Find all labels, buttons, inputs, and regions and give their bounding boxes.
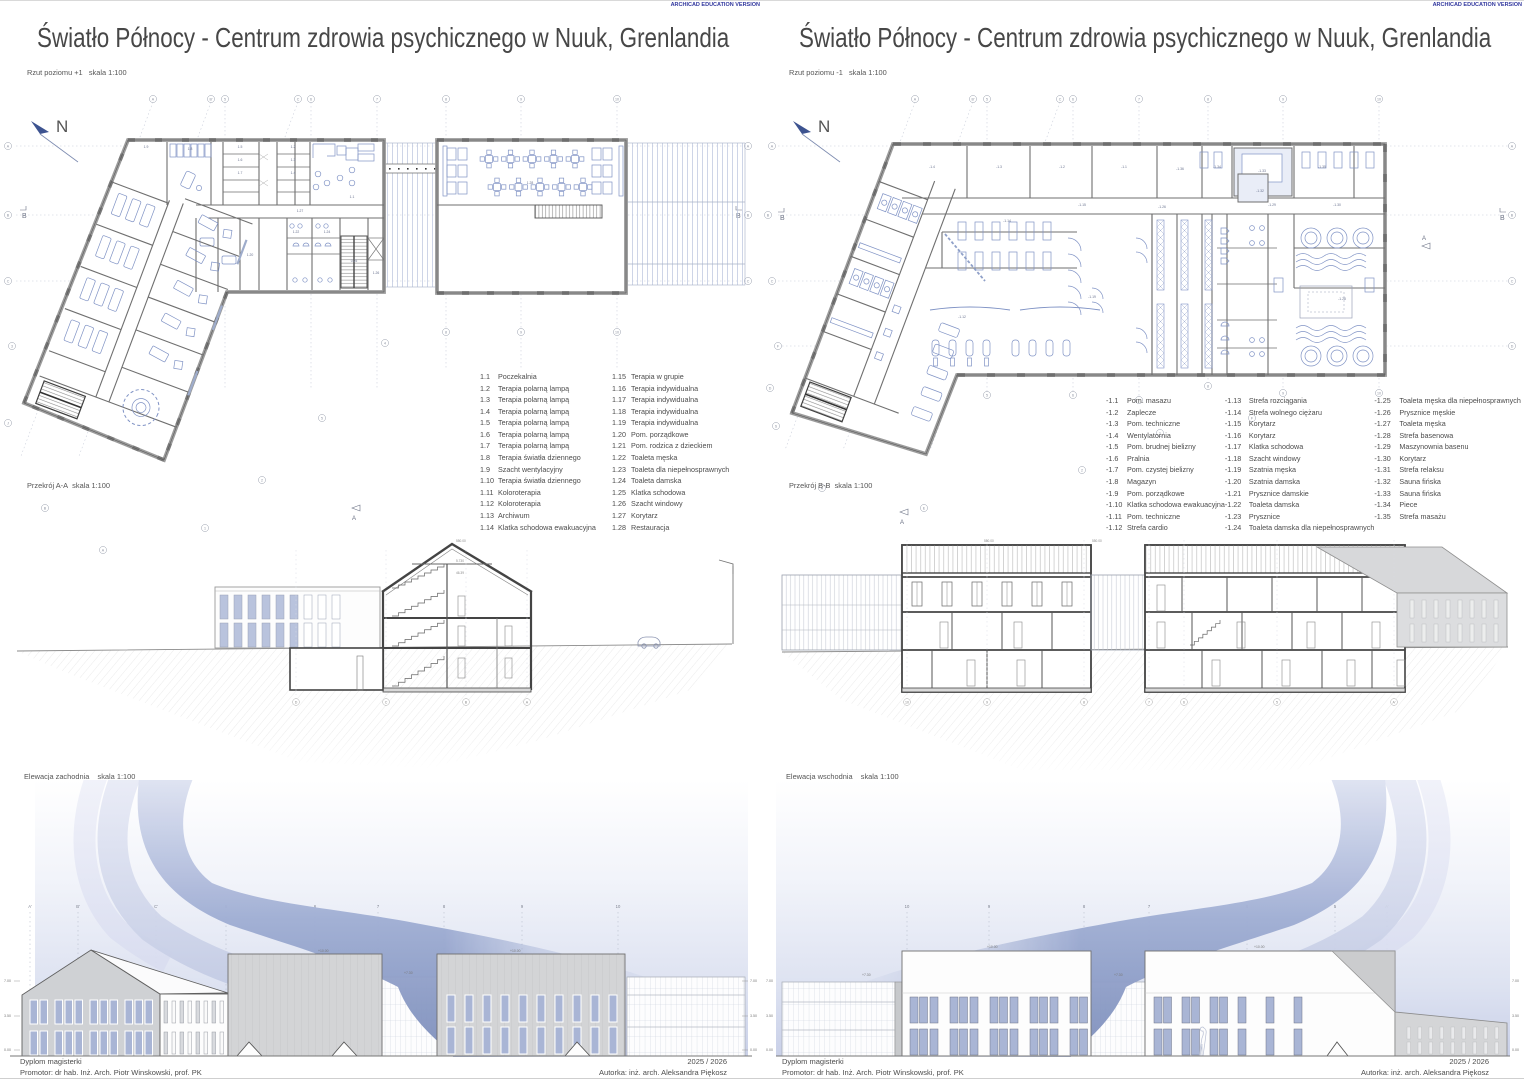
svg-text:-1.14: -1.14: [1003, 219, 1011, 223]
svg-text:10: 10: [615, 330, 619, 334]
svg-text:-1.19: -1.19: [1088, 295, 1096, 299]
svg-text:6: 6: [310, 97, 312, 101]
svg-text:-1.29: -1.29: [1268, 203, 1276, 207]
svg-text:C: C: [747, 279, 750, 283]
svg-text:7.00: 7.00: [1512, 979, 1519, 983]
svg-text:1.9: 1.9: [144, 145, 149, 149]
svg-text:+10.00: +10.00: [1254, 945, 1265, 949]
svg-text:C: C: [7, 279, 10, 283]
svg-text:C: C: [1511, 279, 1514, 283]
svg-text:8: 8: [1083, 701, 1085, 705]
svg-text:1.2: 1.2: [291, 145, 296, 149]
svg-text:9: 9: [1282, 97, 1284, 101]
svg-text:2: 2: [261, 478, 263, 482]
svg-text:10: 10: [1377, 97, 1381, 101]
svg-text:D: D: [769, 386, 772, 390]
svg-text:6: 6: [1072, 97, 1074, 101]
svg-text:1.27: 1.27: [297, 209, 304, 213]
svg-text:4: 4: [384, 341, 386, 345]
svg-text:1.7: 1.7: [238, 171, 243, 175]
svg-text:0.00: 0.00: [4, 1048, 11, 1052]
svg-text:B: B: [1500, 215, 1505, 222]
svg-text:7: 7: [1138, 97, 1140, 101]
svg-text:7.00: 7.00: [766, 979, 773, 983]
svg-text:550.00: 550.00: [1092, 539, 1102, 543]
svg-text:D: D: [1511, 344, 1514, 348]
svg-text:0.00: 0.00: [1512, 1048, 1519, 1052]
svg-text:N: N: [818, 117, 830, 136]
svg-text:7: 7: [1148, 701, 1150, 705]
svg-text:C: C: [771, 279, 774, 283]
svg-text:8: 8: [445, 97, 447, 101]
svg-text:5: 5: [224, 97, 226, 101]
svg-text:C: C: [385, 701, 388, 705]
svg-text:10: 10: [615, 97, 619, 101]
svg-text:9: 9: [520, 330, 522, 334]
svg-text:+7.30: +7.30: [1114, 973, 1123, 977]
svg-text:+10.00: +10.00: [318, 949, 329, 953]
svg-text:+7.30: +7.30: [404, 971, 413, 975]
svg-text:B: B: [22, 213, 27, 220]
svg-text:A': A': [1392, 701, 1395, 705]
svg-text:0.00: 0.00: [750, 1048, 757, 1052]
svg-text:3: 3: [11, 344, 13, 348]
svg-text:B': B': [971, 97, 974, 101]
svg-text:C: C: [1059, 97, 1062, 101]
svg-text:3.50: 3.50: [4, 1014, 11, 1018]
svg-text:550.00: 550.00: [456, 539, 466, 543]
svg-text:5: 5: [986, 97, 988, 101]
svg-text:3.50: 3.50: [1512, 1014, 1519, 1018]
svg-text:9: 9: [520, 97, 522, 101]
svg-text:3.50: 3.50: [750, 1014, 757, 1018]
svg-text:A': A': [28, 904, 32, 909]
svg-text:0.00: 0.00: [766, 1048, 773, 1052]
svg-text:-1.3: -1.3: [996, 165, 1002, 169]
svg-text:9: 9: [986, 701, 988, 705]
svg-text:8: 8: [1207, 97, 1209, 101]
svg-text:+10.00: +10.00: [510, 949, 521, 953]
svg-text:1.20: 1.20: [247, 253, 254, 257]
svg-text:-1.26: -1.26: [1158, 205, 1166, 209]
svg-text:-1.35: -1.35: [1318, 165, 1326, 169]
svg-text:1.3: 1.3: [291, 158, 296, 162]
svg-text:+10.00: +10.00: [987, 945, 998, 949]
svg-text:A: A: [352, 516, 356, 522]
svg-text:10: 10: [905, 904, 910, 909]
svg-text:J: J: [7, 421, 9, 425]
svg-text:7.00: 7.00: [750, 979, 757, 983]
svg-text:-1.32: -1.32: [1256, 189, 1264, 193]
svg-text:-1.34: -1.34: [1213, 165, 1221, 169]
svg-text:2: 2: [1081, 468, 1083, 472]
svg-text:-1.4: -1.4: [929, 165, 935, 169]
svg-text:1.8: 1.8: [188, 147, 193, 151]
svg-text:C': C': [154, 904, 158, 909]
svg-text:1.1: 1.1: [350, 195, 355, 199]
svg-text:10: 10: [905, 701, 909, 705]
svg-text:1.26: 1.26: [373, 271, 380, 275]
svg-text:8: 8: [1207, 384, 1209, 388]
svg-text:-1.30: -1.30: [1333, 203, 1341, 207]
svg-text:7.00: 7.00: [4, 979, 11, 983]
svg-text:1.28: 1.28: [527, 181, 534, 185]
svg-text:46.39: 46.39: [456, 571, 464, 575]
svg-text:D: D: [295, 701, 298, 705]
svg-text:5: 5: [1276, 701, 1278, 705]
svg-text:0.25: 0.25: [351, 259, 358, 263]
svg-text:-1.12: -1.12: [958, 315, 966, 319]
svg-text:A: A: [1422, 236, 1426, 242]
svg-text:10: 10: [616, 904, 621, 909]
svg-text:1.5: 1.5: [238, 145, 243, 149]
svg-text:1.4: 1.4: [291, 171, 296, 175]
svg-text:-1.1: -1.1: [1121, 165, 1127, 169]
svg-text:5: 5: [986, 393, 988, 397]
svg-text:7: 7: [376, 97, 378, 101]
svg-text:3.50: 3.50: [766, 1014, 773, 1018]
svg-text:1.22: 1.22: [293, 230, 300, 234]
svg-text:B': B': [76, 904, 80, 909]
svg-text:8: 8: [445, 330, 447, 334]
svg-text:5.730: 5.730: [456, 559, 464, 563]
svg-text:-1.36: -1.36: [1176, 167, 1184, 171]
svg-text:-1.33: -1.33: [1258, 169, 1266, 173]
svg-text:A: A: [900, 520, 904, 526]
svg-text:-1.2: -1.2: [1059, 165, 1065, 169]
svg-text:550.00: 550.00: [984, 539, 994, 543]
svg-text:1.6: 1.6: [238, 158, 243, 162]
svg-text:-1.28: -1.28: [1338, 297, 1346, 301]
svg-text:1.24: 1.24: [324, 230, 331, 234]
svg-text:-1.15: -1.15: [1078, 203, 1086, 207]
svg-text:+7.30: +7.30: [862, 973, 871, 977]
svg-text:6: 6: [1072, 393, 1074, 397]
svg-text:C: C: [297, 97, 300, 101]
svg-text:5: 5: [321, 416, 323, 420]
svg-text:B: B: [780, 215, 785, 222]
svg-text:N: N: [56, 117, 68, 136]
svg-text:6: 6: [1183, 701, 1185, 705]
svg-text:B': B': [209, 97, 212, 101]
